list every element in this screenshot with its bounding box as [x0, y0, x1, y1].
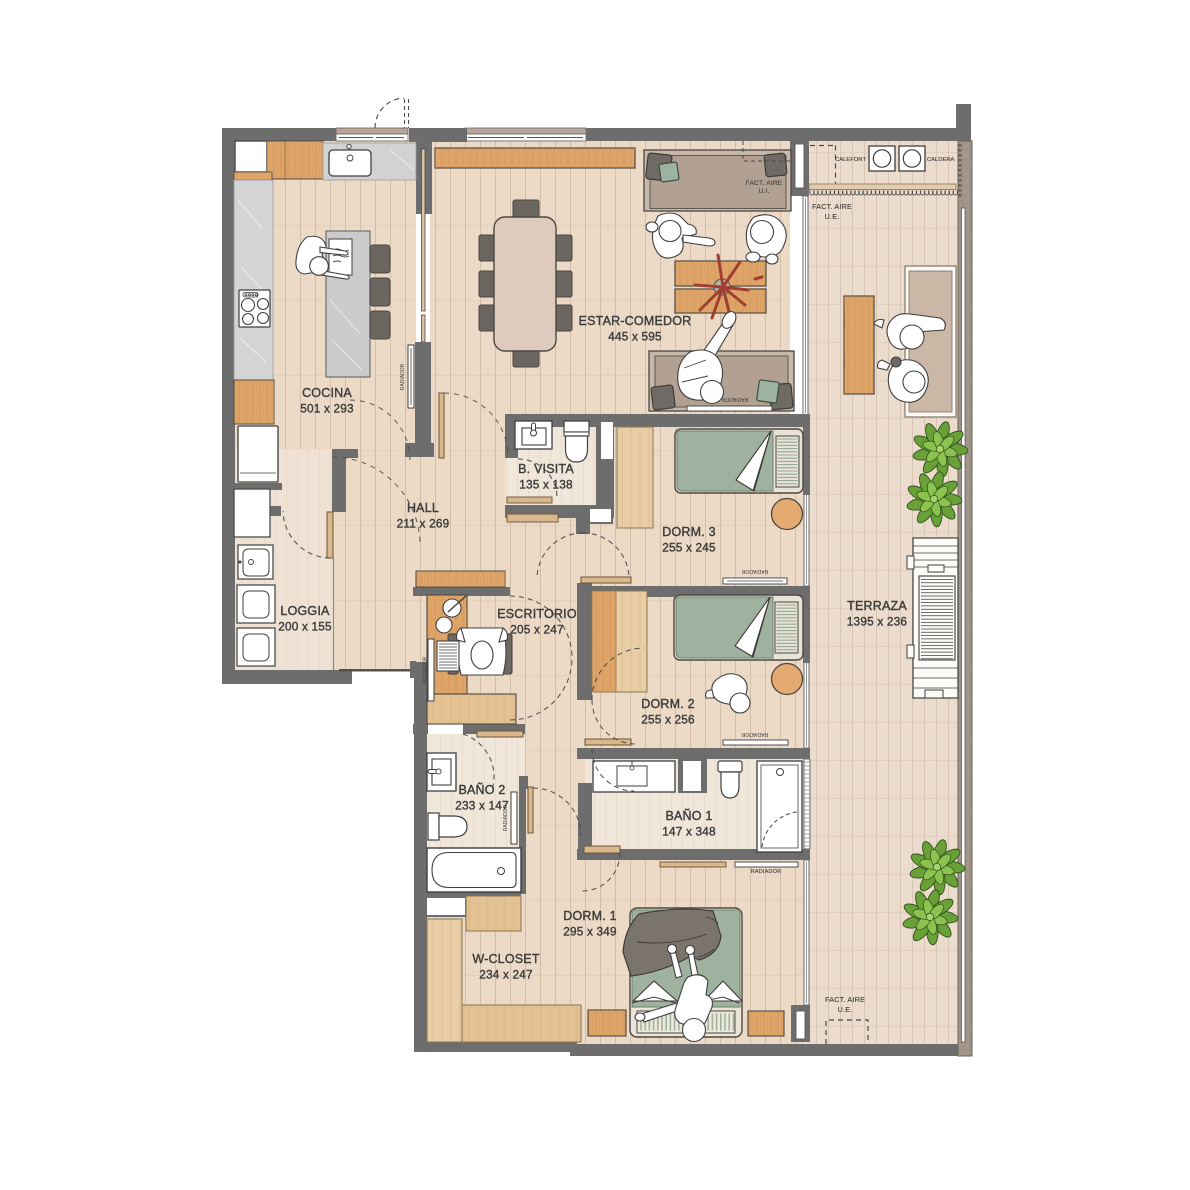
svg-text:211 x 269: 211 x 269 — [397, 517, 450, 531]
svg-text:CALDERA: CALDERA — [927, 157, 955, 163]
svg-text:U.I.: U.I. — [758, 188, 769, 195]
svg-text:W-CLOSET: W-CLOSET — [472, 952, 540, 966]
svg-text:ESCRITORIO: ESCRITORIO — [497, 607, 577, 621]
svg-text:234 x 247: 234 x 247 — [479, 968, 533, 982]
svg-text:RADIADOR: RADIADOR — [721, 396, 748, 402]
svg-text:135 x 138: 135 x 138 — [519, 478, 573, 492]
svg-text:147 x 348: 147 x 348 — [662, 825, 716, 839]
svg-text:ESTAR-COMEDOR: ESTAR-COMEDOR — [579, 314, 692, 328]
svg-text:FACT. AIRE: FACT. AIRE — [825, 995, 865, 1004]
svg-text:RADIADOR: RADIADOR — [751, 869, 782, 875]
svg-text:LOGGIA: LOGGIA — [280, 604, 330, 618]
svg-text:RADIADOR: RADIADOR — [400, 363, 406, 390]
svg-text:CALEFONT: CALEFONT — [835, 157, 866, 163]
svg-text:DORM. 3: DORM. 3 — [662, 525, 716, 539]
svg-text:200 x 155: 200 x 155 — [278, 620, 332, 634]
svg-text:U.E.: U.E. — [838, 1005, 853, 1014]
svg-text:1395 x 236: 1395 x 236 — [847, 615, 908, 629]
svg-text:COCINA: COCINA — [302, 386, 352, 400]
svg-text:U.E.: U.E. — [825, 212, 840, 221]
svg-text:445 x 595: 445 x 595 — [608, 330, 662, 344]
svg-text:DORM. 2: DORM. 2 — [641, 697, 695, 711]
svg-text:295 x 349: 295 x 349 — [563, 925, 617, 939]
svg-text:BAÑO 2: BAÑO 2 — [458, 783, 505, 797]
svg-text:501 x 293: 501 x 293 — [300, 402, 354, 416]
svg-text:255 x 245: 255 x 245 — [662, 541, 716, 555]
svg-text:DORM. 1: DORM. 1 — [563, 909, 617, 923]
svg-text:FACT. AIRE: FACT. AIRE — [746, 180, 783, 187]
svg-text:BAÑO 1: BAÑO 1 — [665, 809, 712, 823]
svg-text:TERRAZA: TERRAZA — [847, 599, 907, 613]
svg-text:B. VISITA: B. VISITA — [518, 462, 574, 476]
svg-text:HALL: HALL — [407, 501, 439, 515]
svg-text:FACT. AIRE: FACT. AIRE — [812, 202, 852, 211]
svg-text:RADIADOR: RADIADOR — [741, 568, 768, 574]
svg-text:233 x 147: 233 x 147 — [455, 799, 509, 813]
svg-text:RADIADOR: RADIADOR — [741, 731, 768, 737]
svg-text:255 x 256: 255 x 256 — [641, 713, 695, 727]
svg-text:205 x 247: 205 x 247 — [510, 623, 564, 637]
svg-text:RADIADOR: RADIADOR — [423, 656, 429, 683]
